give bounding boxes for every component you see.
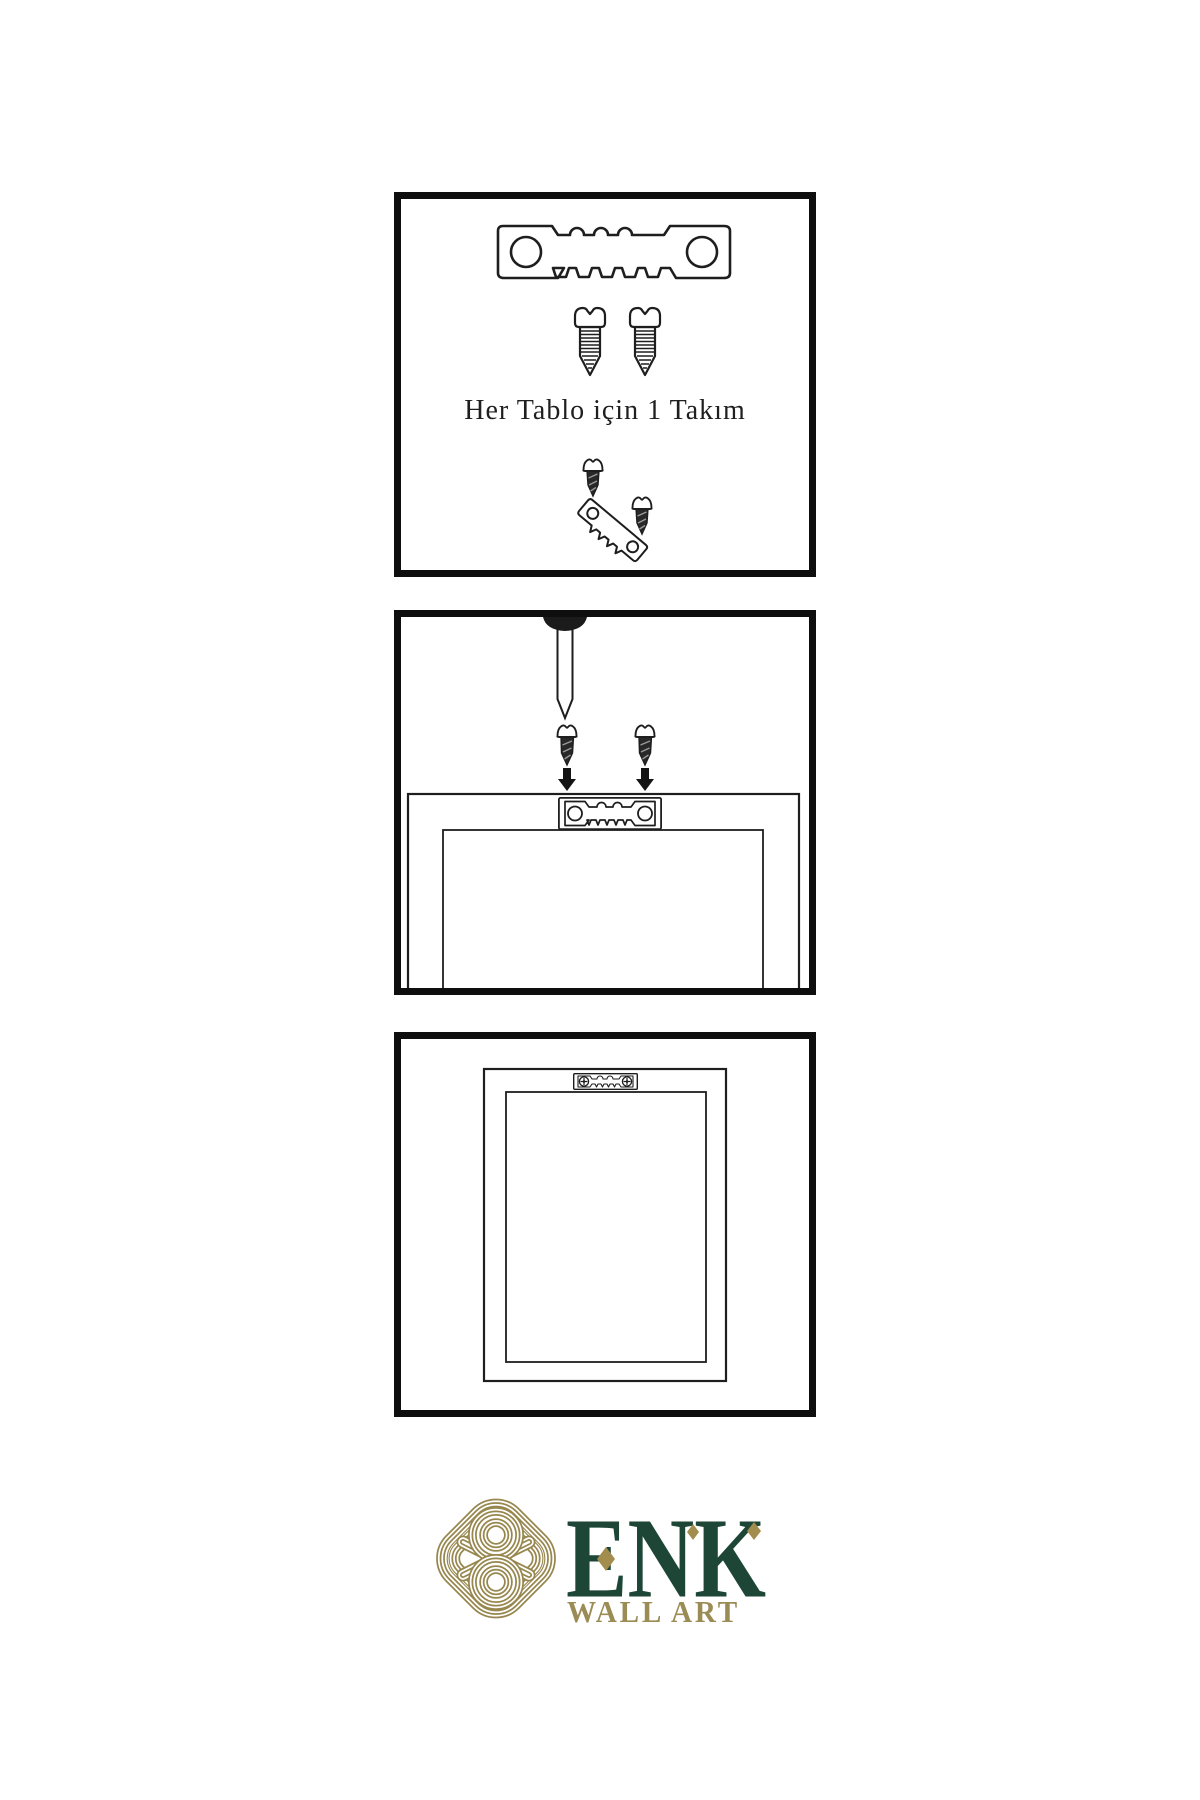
panel-step-2-wall-mounting xyxy=(394,610,816,995)
sawtooth-hanger-icon xyxy=(559,798,661,829)
frame-back-icon xyxy=(484,1069,726,1381)
phillips-screw-icon xyxy=(579,1077,588,1086)
hardware-set-caption: Her Tablo için 1 Takım xyxy=(401,395,809,427)
arrow-down-icon xyxy=(558,768,576,791)
phillips-screw-icon xyxy=(622,1077,631,1086)
wall-mounting-graphic xyxy=(401,617,809,988)
hardware-set-graphic xyxy=(401,199,809,570)
brand-tagline: WALL ART xyxy=(567,1594,740,1629)
screw-icon xyxy=(630,308,660,375)
brand-logo-graphic: ENK WALL ART xyxy=(430,1488,790,1638)
sawtooth-hanger-icon xyxy=(498,226,730,278)
hanger-hole-icon xyxy=(687,237,717,267)
dark-screw-icon xyxy=(632,497,651,534)
sawtooth-hanger-screwed-icon xyxy=(574,1074,638,1090)
brand-logo: ENK WALL ART xyxy=(430,1488,790,1638)
arrow-down-icon xyxy=(636,768,654,791)
mounted-frame-graphic xyxy=(401,1039,809,1410)
dark-screw-icon xyxy=(635,725,654,765)
panel-step-3-mounted-frame xyxy=(394,1032,816,1417)
panel-step-1-hardware-set: Her Tablo için 1 Takım xyxy=(394,192,816,577)
nail-icon xyxy=(543,617,587,718)
dark-screw-icon xyxy=(557,725,576,765)
instruction-sheet: Her Tablo için 1 Takım xyxy=(0,0,1200,1800)
screw-icon xyxy=(575,308,605,375)
celtic-knot-icon xyxy=(439,1502,552,1615)
hanger-hole-icon xyxy=(511,237,541,267)
dark-screw-icon xyxy=(583,459,602,496)
